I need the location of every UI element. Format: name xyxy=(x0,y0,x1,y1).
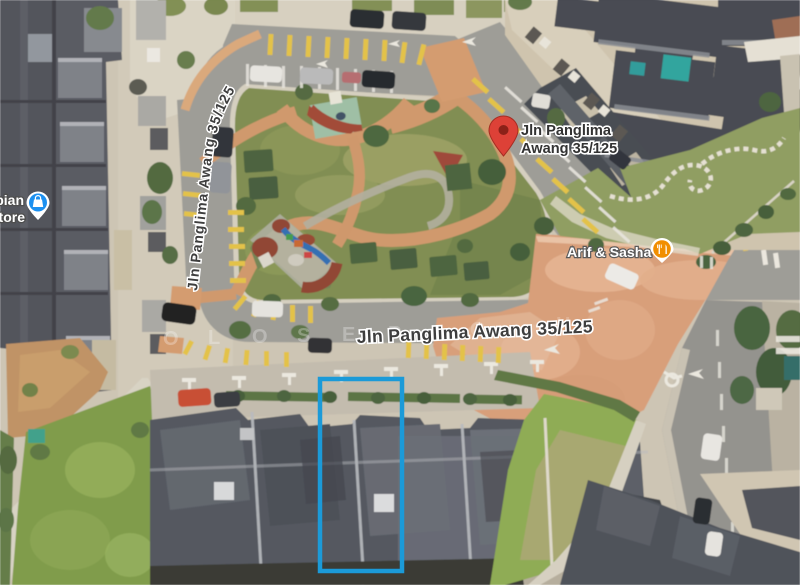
svg-text:E: E xyxy=(342,324,355,346)
svg-text:store: store xyxy=(0,209,25,225)
svg-text:S: S xyxy=(297,325,310,347)
svg-text:O: O xyxy=(252,326,268,348)
svg-text:O: O xyxy=(163,328,179,350)
svg-text:L: L xyxy=(208,327,220,349)
svg-text:Arif & Sasha: Arif & Sasha xyxy=(567,245,651,261)
svg-text:Jln Panglima: Jln Panglima xyxy=(521,123,612,139)
svg-text:bian: bian xyxy=(0,192,24,208)
svg-text:Awang 35/125: Awang 35/125 xyxy=(521,141,617,157)
